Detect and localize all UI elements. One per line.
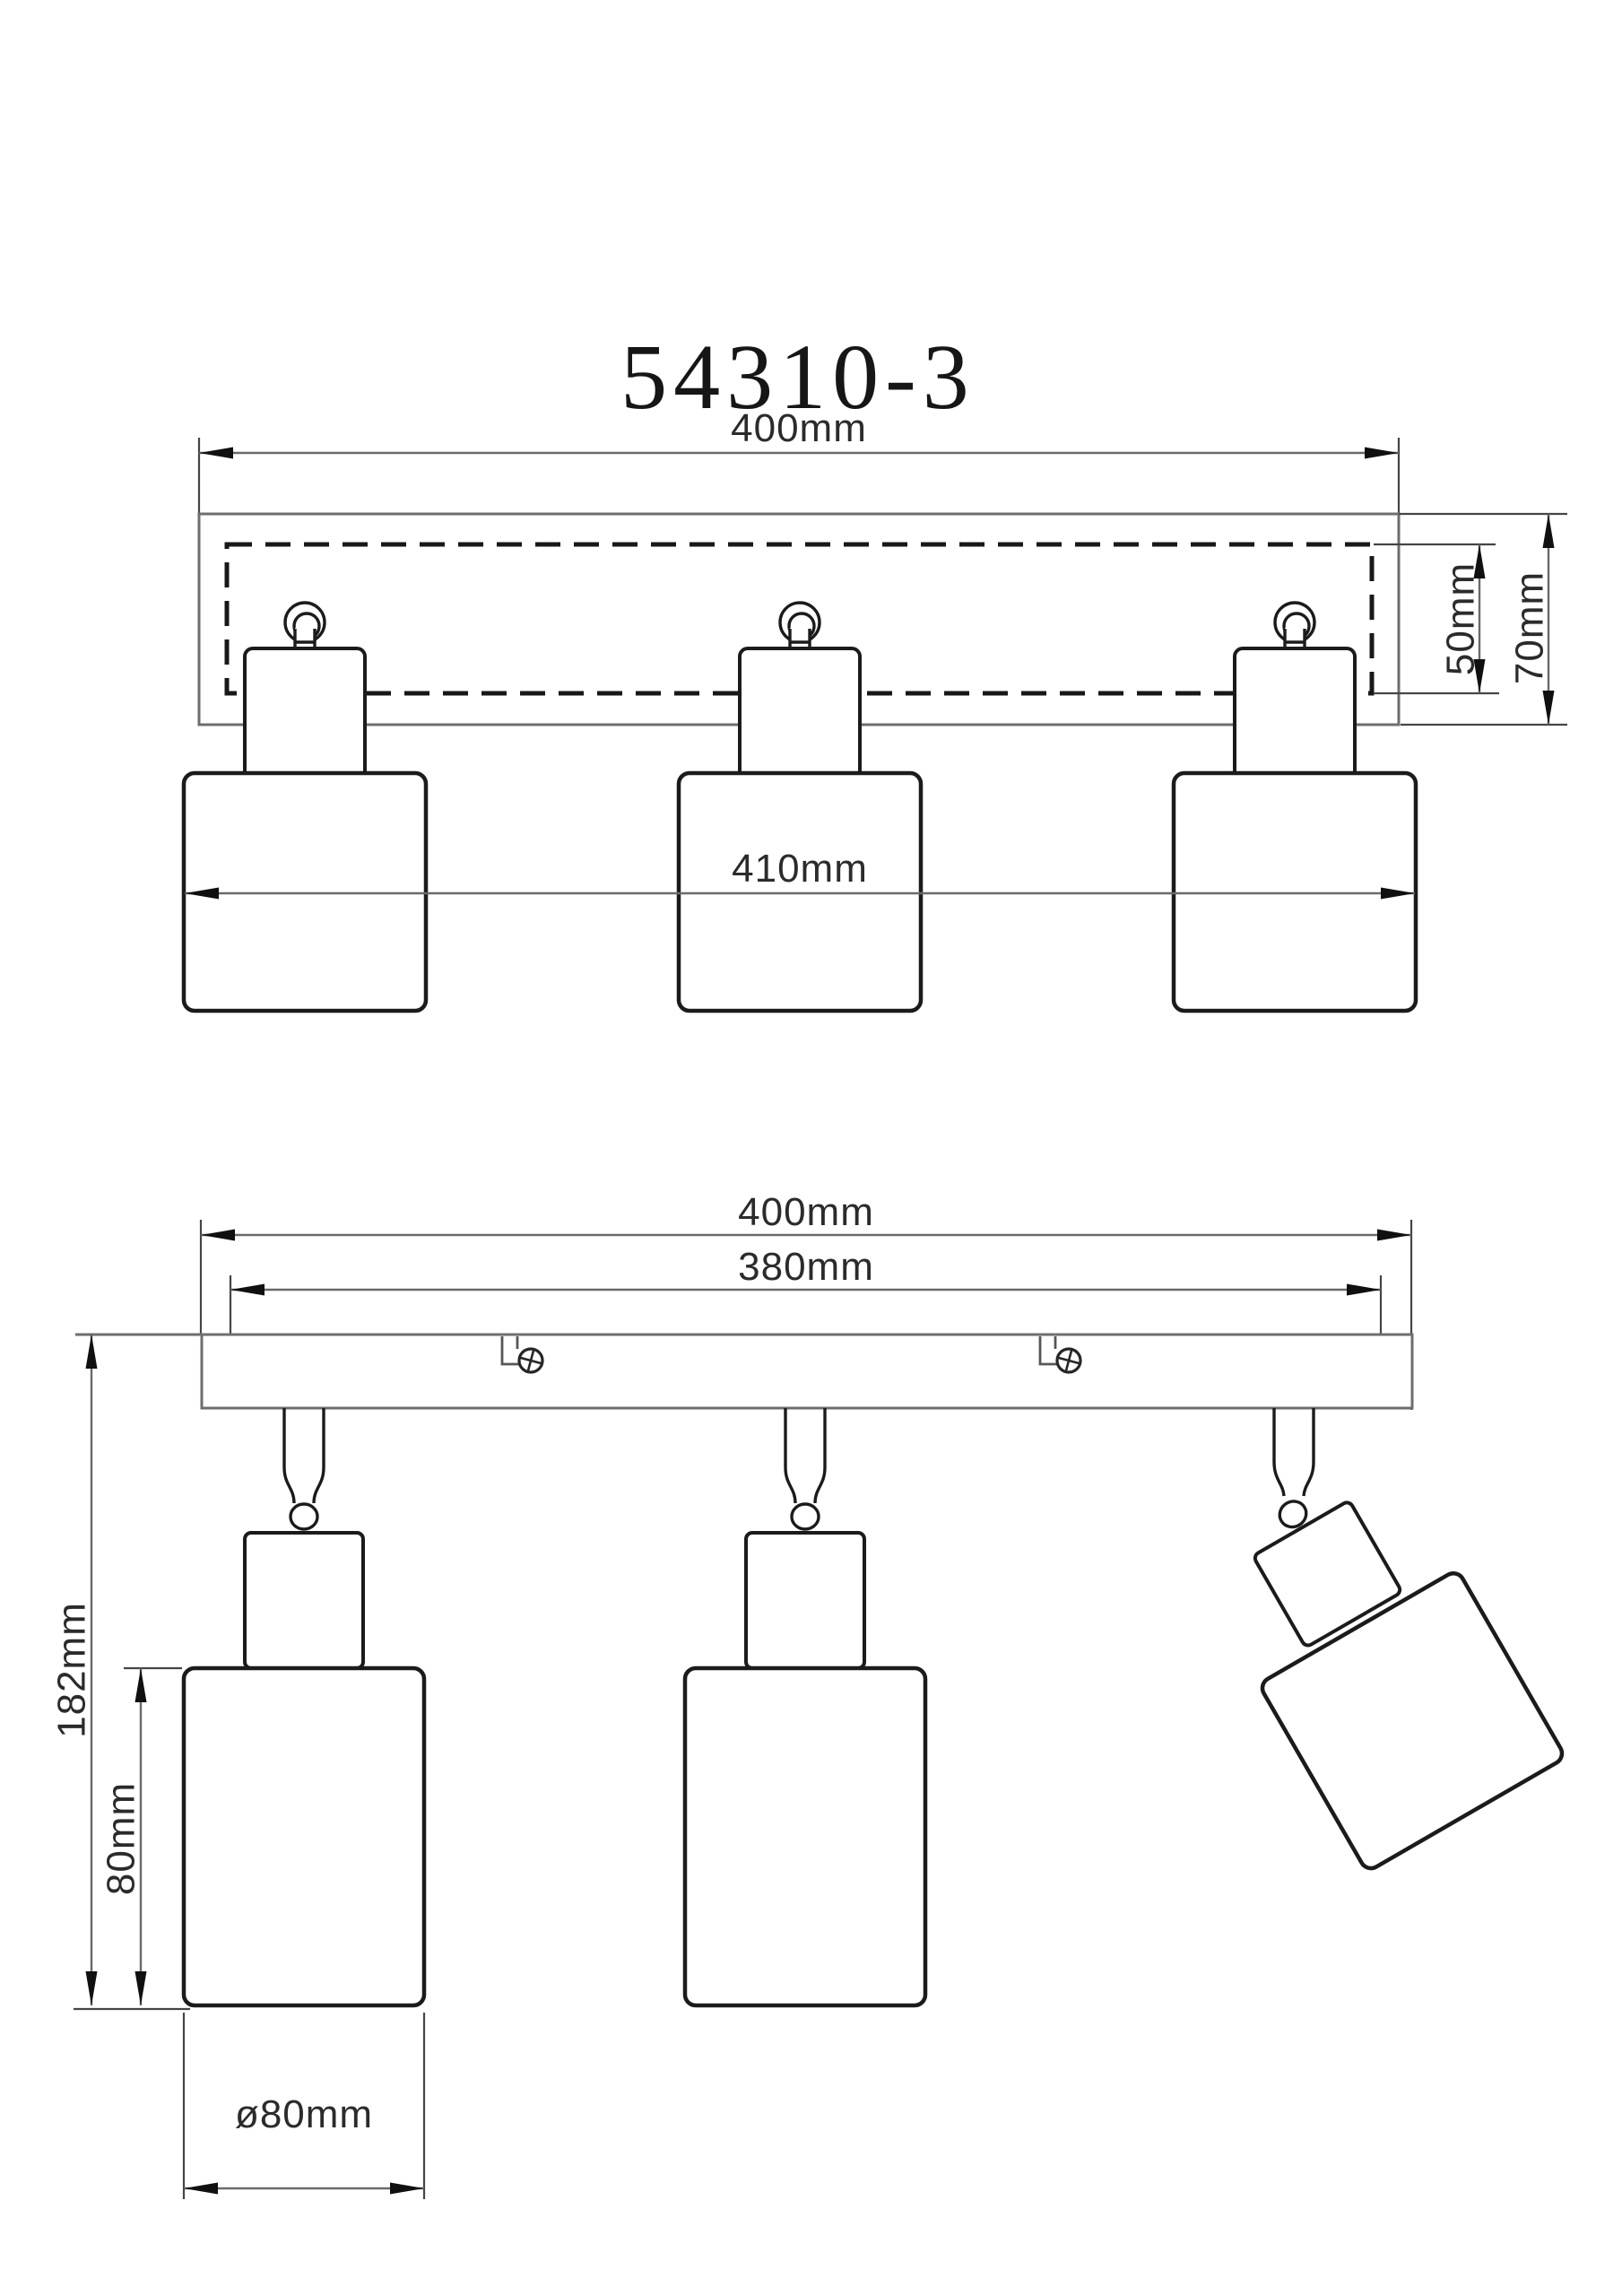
lamp-side-1 xyxy=(184,1408,424,2005)
bottom-view: 400mm 380mm xyxy=(50,1190,1566,2199)
bottom-width-label: 400mm xyxy=(738,1190,874,1234)
ceiling-bar-outline xyxy=(202,1335,1412,1408)
bottom-dim-182mm: 182mm xyxy=(50,1335,204,2009)
lamp-shade-top-2 xyxy=(679,773,921,1011)
lamp-shade-side-2 xyxy=(685,1668,925,2005)
top-recess-depth-label: 50mm xyxy=(1439,562,1483,675)
bottom-shade-diameter-label: ø80mm xyxy=(235,2092,373,2136)
top-span-label: 410mm xyxy=(732,847,868,891)
drawing-page: 54310-3 400mm 50mm xyxy=(0,0,1622,2296)
bottom-dim-80mm: 80mm xyxy=(100,1668,183,2005)
bottom-shade-height-label: 80mm xyxy=(100,1782,143,1895)
lamp-side-3-tilted xyxy=(1187,1408,1566,1872)
lamp-holder-2 xyxy=(746,1533,864,1668)
lamp-shade-top-1 xyxy=(184,773,426,1011)
bottom-mounting-span-label: 380mm xyxy=(738,1245,874,1289)
bottom-dim-dia80mm: ø80mm xyxy=(184,2013,424,2199)
top-dim-400mm: 400mm xyxy=(199,406,1399,514)
bottom-dim-380mm: 380mm xyxy=(230,1245,1381,1335)
lamp-holder-1 xyxy=(245,1533,363,1668)
lamp-shade-side-1 xyxy=(184,1668,424,2005)
top-width-label: 400mm xyxy=(731,406,867,450)
lamp-shade-top-3 xyxy=(1174,773,1416,1011)
top-view: 400mm 50mm 70mm xyxy=(184,406,1567,1011)
top-lamp-shades xyxy=(184,773,1416,1011)
technical-drawing: 54310-3 400mm 50mm xyxy=(0,0,1622,2296)
bottom-overall-height-label: 182mm xyxy=(50,1602,94,1738)
lamp-side-2 xyxy=(685,1408,925,2005)
top-overall-depth-label: 70mm xyxy=(1508,571,1552,684)
